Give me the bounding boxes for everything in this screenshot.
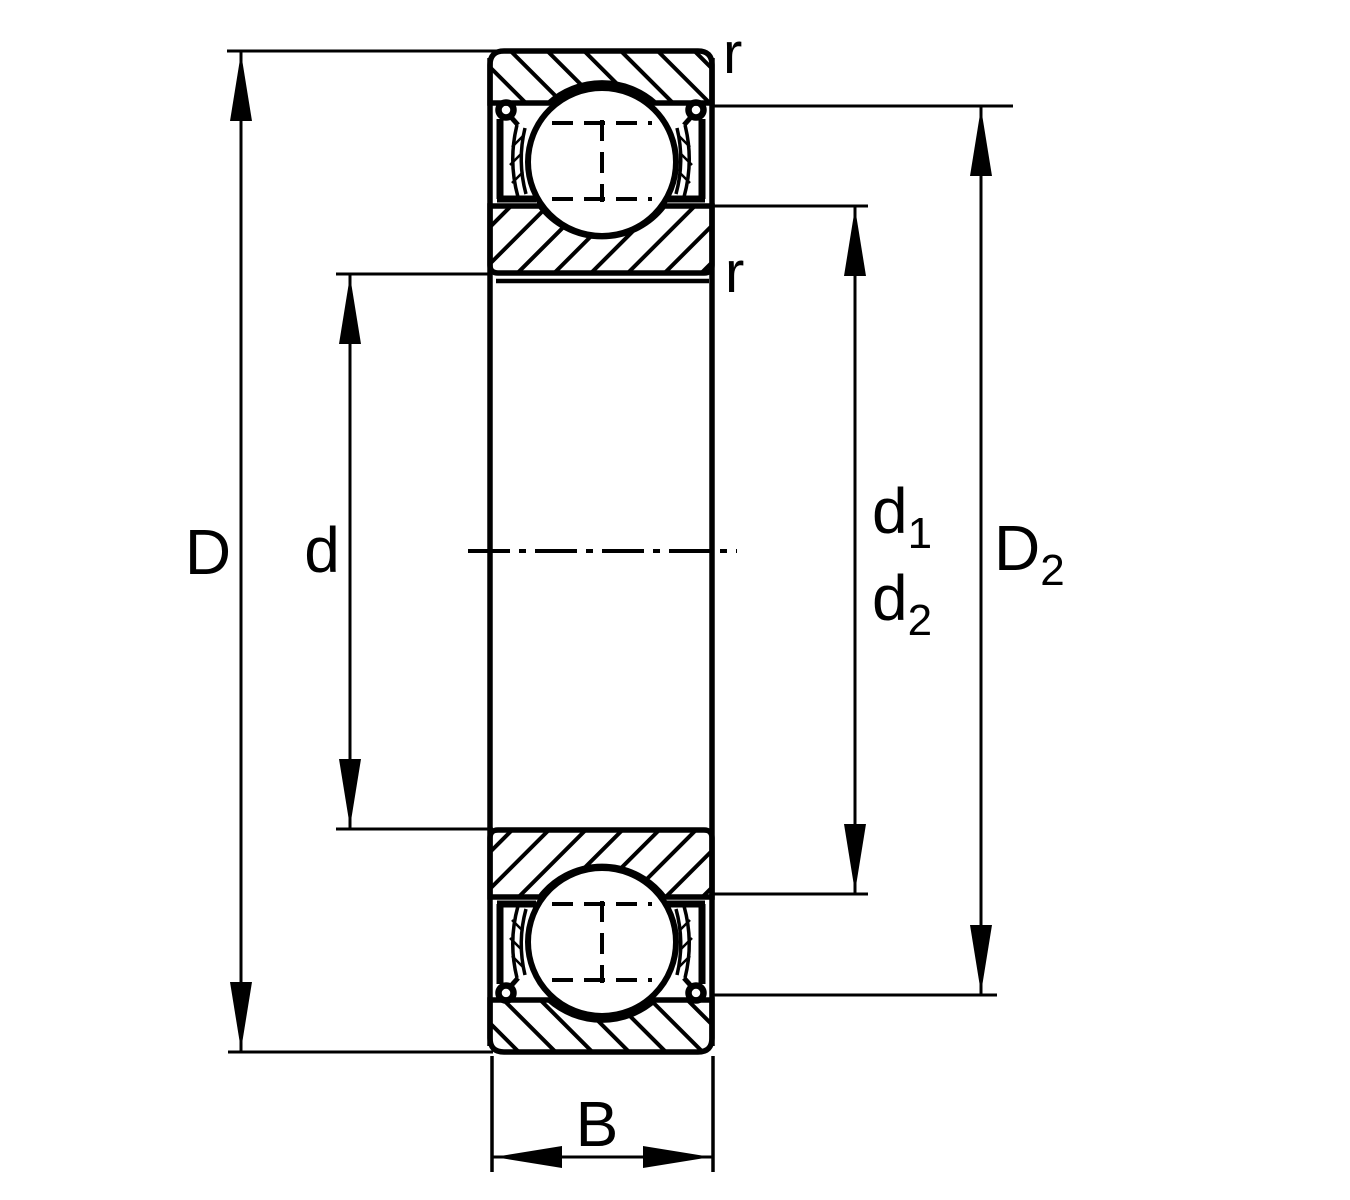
dim-B-arrow-left: [494, 1146, 562, 1168]
dim-D-arrow-up: [230, 53, 252, 121]
bottom-cross-section: [490, 830, 712, 1052]
bearing-section: [468, 51, 737, 1052]
bearing-drawing-canvas: D d d1 d2 D2: [0, 0, 1350, 1200]
label-d: d: [304, 514, 340, 586]
top-cross-section: [490, 51, 712, 273]
label-D2: D2: [994, 512, 1065, 595]
dim-D-arrow-down: [230, 982, 252, 1050]
dim-d-arrow-up: [339, 276, 361, 344]
dim-d1-arrow-up: [844, 208, 866, 276]
shield-bottom-right-crimp-tail: [684, 978, 692, 987]
label-B: B: [576, 1088, 619, 1160]
bearing-dimension-diagram: D d d1 d2 D2: [0, 0, 1350, 1200]
dimension-D2: D2: [712, 106, 1065, 995]
dim-d-arrow-down: [339, 759, 361, 827]
dim-B-arrow-right: [643, 1146, 711, 1168]
label-D: D: [185, 516, 231, 588]
shield-top-right-crimp-tail: [684, 116, 692, 125]
dimension-d1-d2: d1 d2: [712, 206, 932, 894]
dim-D2-arrow-up: [970, 108, 992, 176]
label-r-inner: r: [725, 240, 744, 305]
shield-top-left-crimp-tail: [510, 116, 518, 125]
dim-d1-arrow-down: [844, 824, 866, 892]
label-d2: d2: [872, 562, 932, 645]
label-r-outer: r: [723, 21, 742, 86]
shield-bottom-left-crimp-tail: [510, 978, 518, 987]
dimension-d: d: [304, 274, 493, 829]
label-d1: d1: [872, 475, 932, 558]
dim-D2-arrow-down: [970, 925, 992, 993]
dimension-B: B: [492, 1056, 713, 1172]
dimension-D: D: [185, 51, 497, 1052]
